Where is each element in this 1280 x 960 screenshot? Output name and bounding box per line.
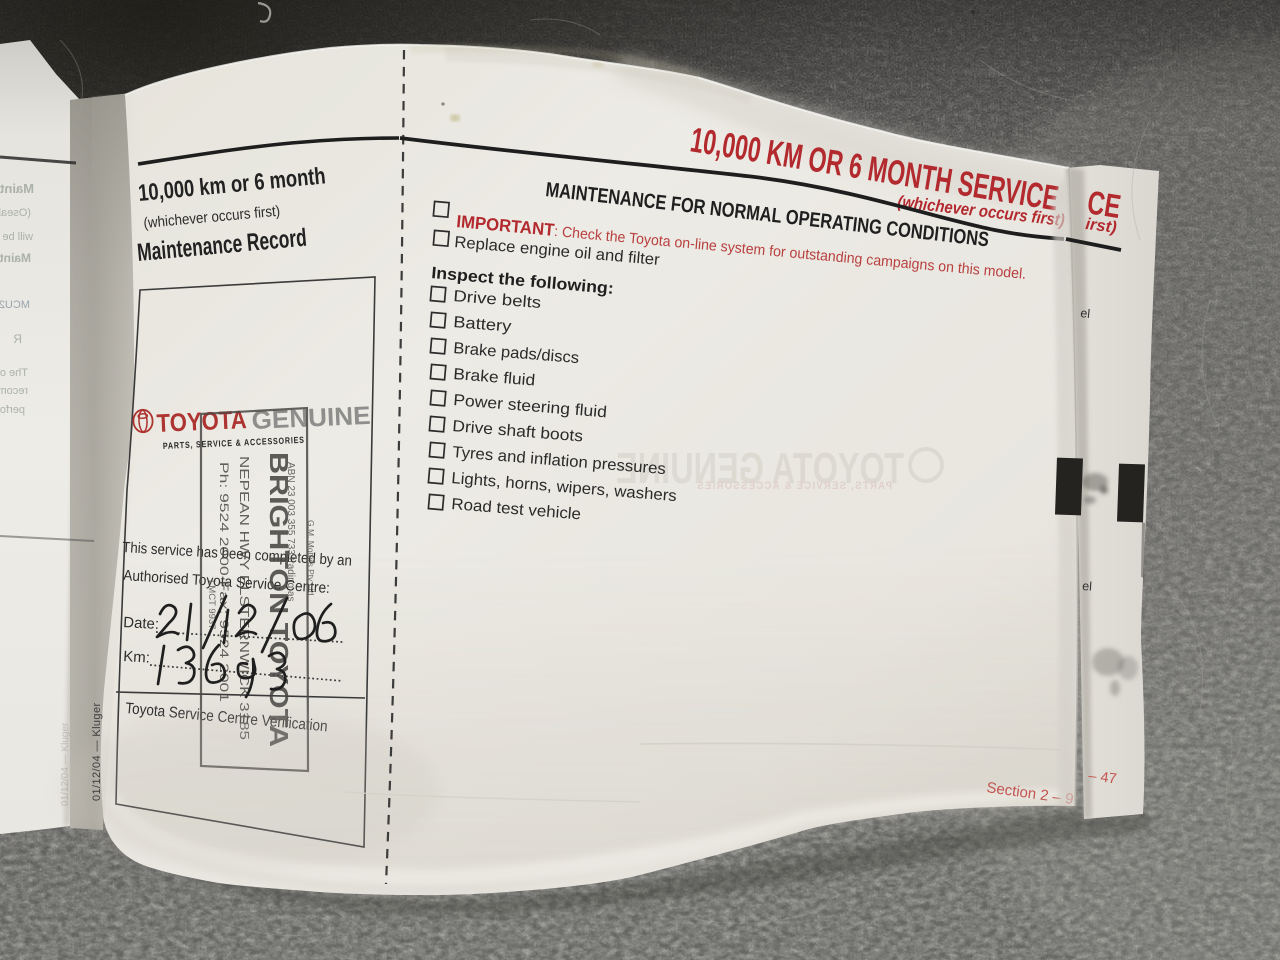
svg-text:R: R bbox=[13, 332, 22, 346]
svg-text:recomme: recomme bbox=[0, 385, 28, 397]
svg-text:(Oseable w: (Oseable w bbox=[0, 207, 31, 219]
svg-text:el: el bbox=[1082, 579, 1093, 594]
svg-text:– 47: – 47 bbox=[1088, 768, 1118, 787]
svg-text:BRIGHTON TOYOTA: BRIGHTON TOYOTA bbox=[264, 452, 294, 747]
svg-text:G.M. Motors Pty Ltd: G.M. Motors Pty Ltd bbox=[306, 520, 316, 596]
svg-text:The owne: The owne bbox=[0, 367, 28, 379]
svg-text:irst): irst) bbox=[1085, 215, 1119, 237]
svg-text:PARTS, SERVICE & ACCESSORIES: PARTS, SERVICE & ACCESSORIES bbox=[696, 480, 892, 492]
svg-text:el: el bbox=[1080, 306, 1091, 321]
svg-text:will be pre: will be pre bbox=[0, 231, 34, 243]
svg-text:01/12/04 — Kluger: 01/12/04 — Kluger bbox=[91, 702, 103, 801]
svg-text:Km:: Km: bbox=[123, 648, 151, 667]
svg-text:perform: perform bbox=[0, 404, 25, 416]
svg-text:MCU23: MCU23 bbox=[0, 299, 30, 311]
svg-text:NEPEAN HWY ELSTERNWICK 3185: NEPEAN HWY ELSTERNWICK 3185 bbox=[237, 456, 251, 740]
svg-text:Date:: Date: bbox=[123, 614, 160, 633]
svg-text:01/12/04 — Kluger: 01/12/04 — Kluger bbox=[60, 722, 71, 806]
svg-text:Maintenan: Maintenan bbox=[0, 181, 34, 196]
svg-text:GENUINE: GENUINE bbox=[251, 402, 371, 435]
svg-text:Maintena: Maintena bbox=[0, 251, 31, 265]
